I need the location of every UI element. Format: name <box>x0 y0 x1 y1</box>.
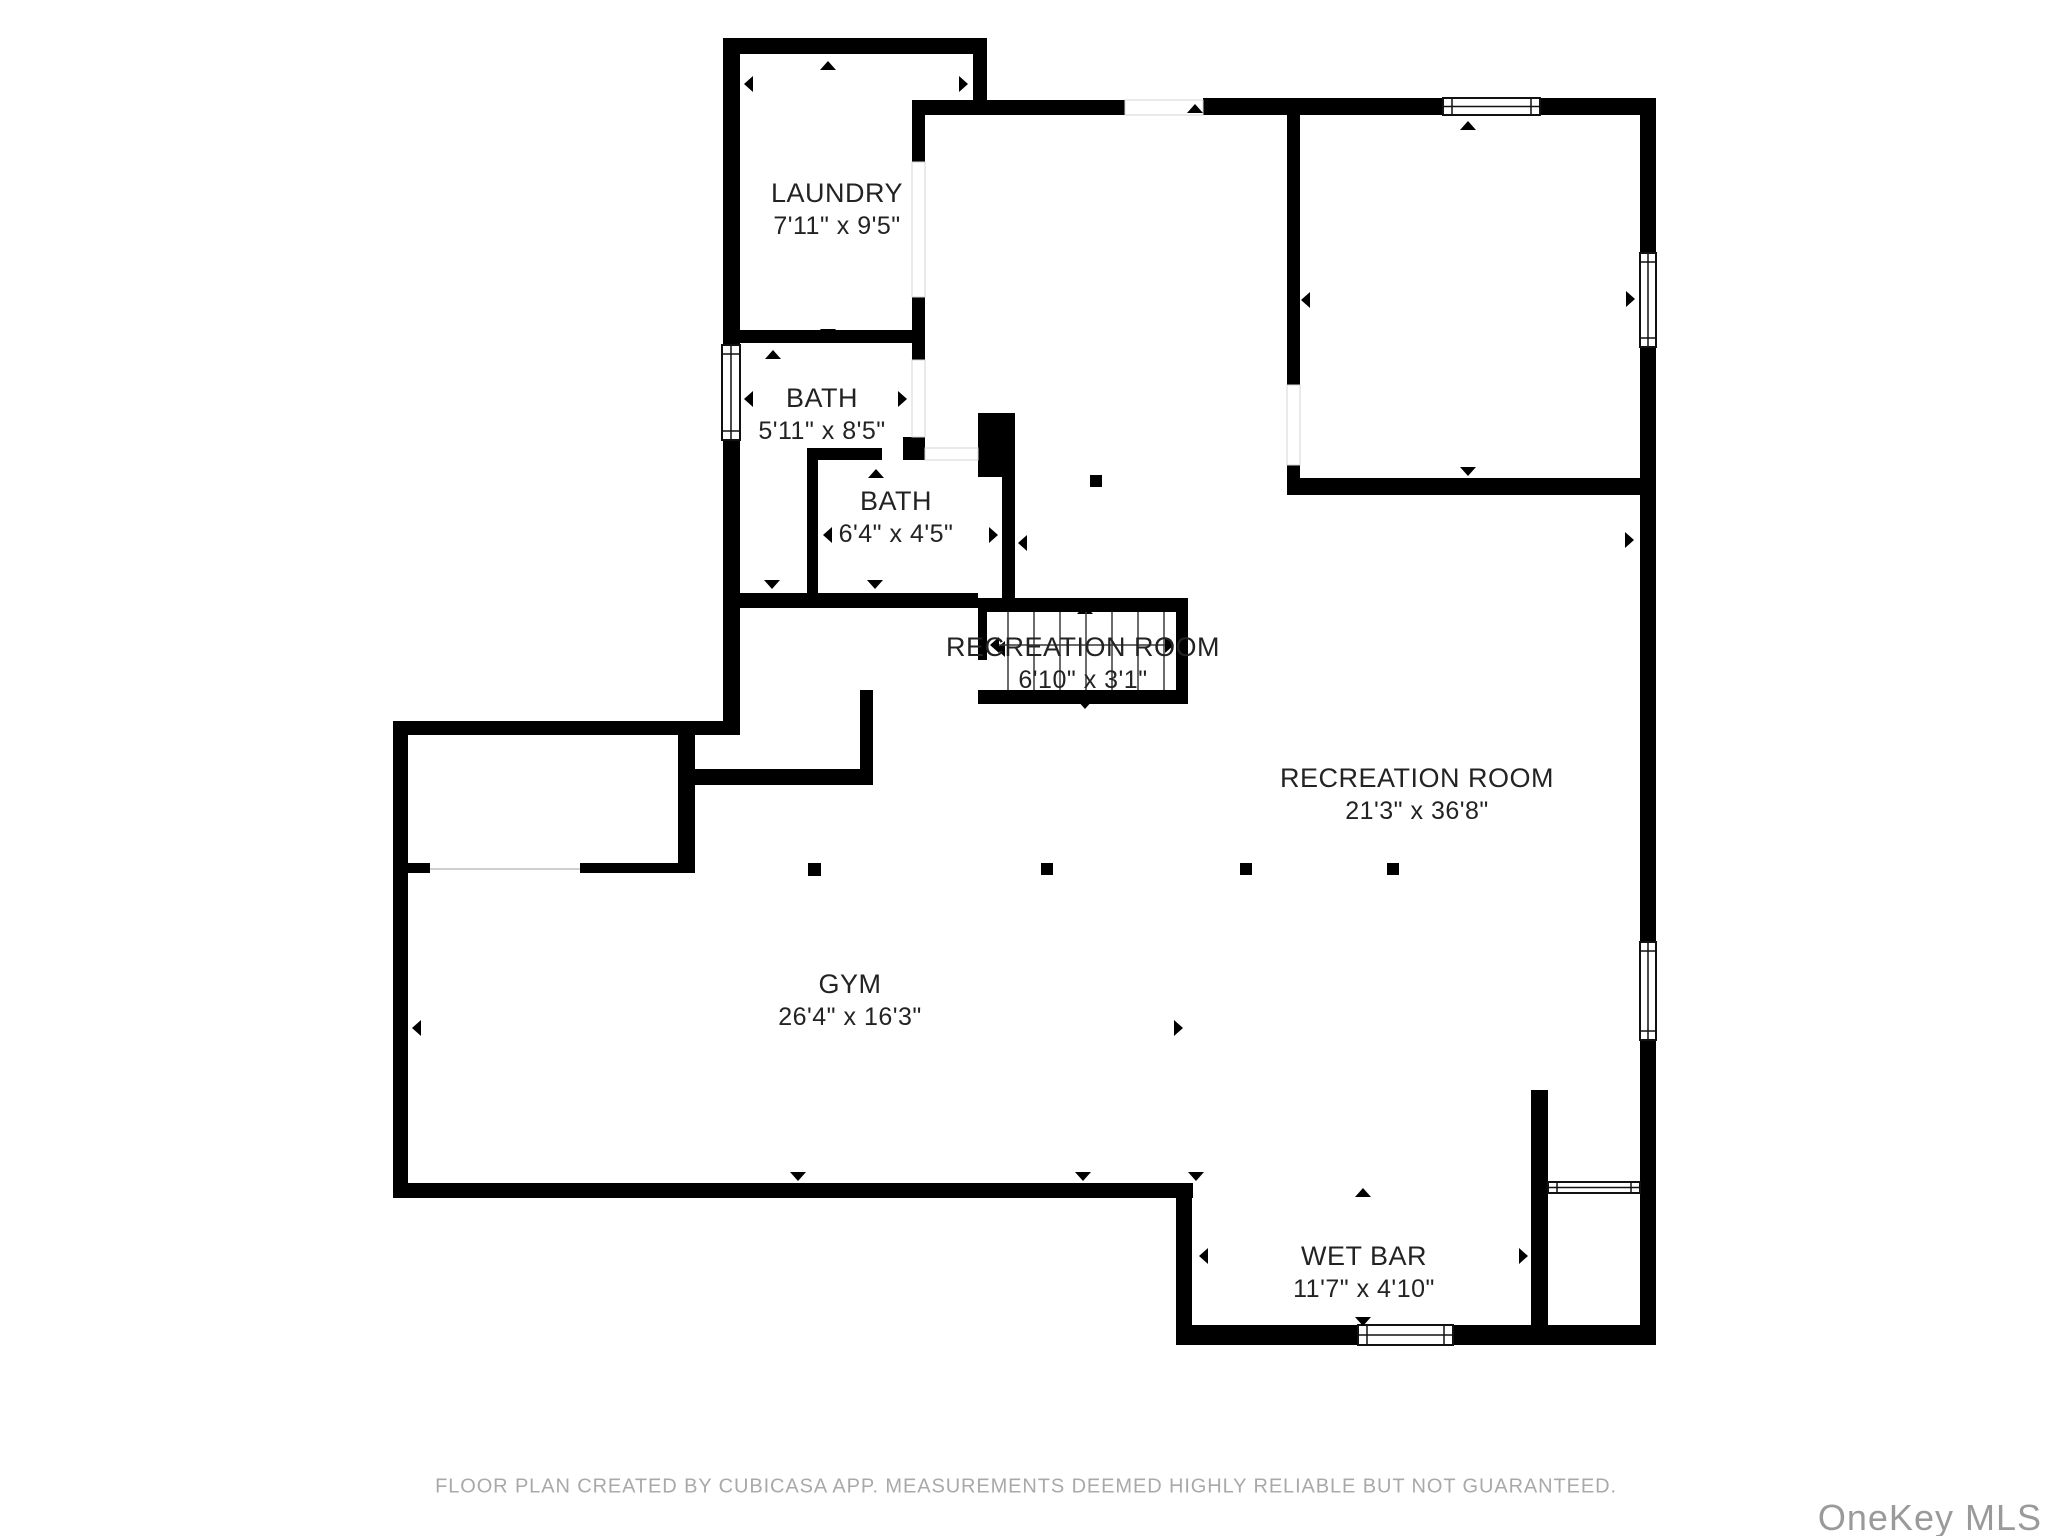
wall <box>1203 98 1443 115</box>
wall <box>393 1183 1193 1198</box>
wall <box>978 413 1015 477</box>
door-opening <box>912 162 925 297</box>
room-dimensions: 21'3" x 36'8" <box>1280 795 1554 828</box>
room-name: BATH <box>839 485 954 518</box>
wall <box>903 437 925 460</box>
wall <box>1640 1040 1656 1345</box>
room-dimensions: 7'11" x 9'5" <box>771 210 903 243</box>
column-post <box>808 863 821 876</box>
dimension-arrow-icon <box>790 1172 806 1181</box>
room-name: GYM <box>778 968 922 1001</box>
dimension-arrow-icon <box>1626 291 1635 307</box>
room-name: WET BAR <box>1293 1240 1435 1273</box>
dimension-arrow-icon <box>1301 292 1310 308</box>
room-name: LAUNDRY <box>771 177 903 210</box>
room-name: BATH <box>758 382 885 415</box>
room-label-bath-1: BATH 5'11" x 8'5" <box>758 382 885 448</box>
column-post <box>1041 863 1053 875</box>
wall <box>678 735 695 873</box>
room-label-gym: GYM 26'4" x 16'3" <box>778 968 922 1034</box>
dimension-arrow-icon <box>1174 1020 1183 1036</box>
dimension-arrow-icon <box>1077 700 1093 709</box>
wall <box>723 38 987 54</box>
wall <box>580 863 695 873</box>
dimension-arrow-icon <box>868 469 884 478</box>
dimension-arrow-icon <box>1355 1188 1371 1197</box>
dimension-arrow-icon <box>765 350 781 359</box>
column-post <box>1387 863 1399 875</box>
door-opening <box>925 448 978 460</box>
dimension-arrow-icon <box>1460 121 1476 130</box>
column-post <box>1090 475 1102 487</box>
room-dimensions: 26'4" x 16'3" <box>778 1001 922 1034</box>
wall <box>1176 1325 1358 1345</box>
room-label-bath-2: BATH 6'4" x 4'5" <box>839 485 954 551</box>
wall <box>408 863 430 873</box>
wall <box>1176 1183 1192 1345</box>
dimension-arrow-icon <box>1460 467 1476 476</box>
wall <box>912 115 925 162</box>
wall <box>1640 98 1656 253</box>
wall <box>1640 347 1656 942</box>
wall <box>807 460 818 593</box>
wall <box>695 769 873 785</box>
dimension-arrow-icon <box>744 76 753 92</box>
room-dimensions: 5'11" x 8'5" <box>758 415 885 448</box>
wall <box>393 721 740 735</box>
room-dimensions: 6'4" x 4'5" <box>839 518 954 551</box>
column-post <box>1240 863 1252 875</box>
room-label-stairs: RECREATION ROOM 6'10" x 3'1" <box>946 631 1220 697</box>
floor-plan-page: LAUNDRY 7'11" x 9'5" BATH 5'11" x 8'5" B… <box>0 0 2048 1536</box>
wall <box>1002 477 1015 598</box>
wall <box>1531 1090 1548 1325</box>
wall <box>1540 98 1656 115</box>
dimension-arrow-icon <box>1075 1172 1091 1181</box>
dimension-arrow-icon <box>959 76 968 92</box>
dimension-arrow-icon <box>823 527 832 543</box>
dimension-arrow-icon <box>1199 1248 1208 1264</box>
room-label-wet-bar: WET BAR 11'7" x 4'10" <box>1293 1240 1435 1306</box>
dimension-arrow-icon <box>412 1020 421 1036</box>
room-label-laundry: LAUNDRY 7'11" x 9'5" <box>771 177 903 243</box>
dimension-arrow-icon <box>898 391 907 407</box>
wall <box>860 690 873 785</box>
wall <box>807 448 882 460</box>
dimension-arrow-icon <box>744 391 753 407</box>
dimension-arrow-icon <box>1519 1248 1528 1264</box>
wall <box>1453 1325 1656 1345</box>
dimension-arrow-icon <box>820 61 836 70</box>
door-opening <box>1287 385 1300 465</box>
dimension-arrow-icon <box>867 580 883 589</box>
wall <box>973 38 987 105</box>
room-name: RECREATION ROOM <box>1280 762 1554 795</box>
wall <box>912 297 925 360</box>
wall <box>912 100 1125 115</box>
dimension-arrow-icon <box>1018 535 1027 551</box>
room-dimensions: 11'7" x 4'10" <box>1293 1273 1435 1306</box>
opening-line <box>430 868 580 870</box>
floor-plan-drawing <box>0 0 2048 1536</box>
room-dimensions: 6'10" x 3'1" <box>946 664 1220 697</box>
disclaimer-text: FLOOR PLAN CREATED BY CUBICASA APP. MEAS… <box>435 1476 1617 1499</box>
dimension-arrow-icon <box>989 527 998 543</box>
mls-watermark: OneKey MLS <box>1818 1497 2042 1536</box>
room-name: RECREATION ROOM <box>946 631 1220 664</box>
wall <box>723 593 978 608</box>
wall <box>1287 115 1300 385</box>
dimension-arrow-icon <box>1188 1172 1204 1181</box>
wall <box>1295 478 1640 495</box>
room-label-recreation: RECREATION ROOM 21'3" x 36'8" <box>1280 762 1554 828</box>
wall <box>723 330 912 343</box>
wall <box>393 735 408 1198</box>
dimension-arrow-icon <box>764 580 780 589</box>
dimension-arrow-icon <box>1625 532 1634 548</box>
door-opening <box>912 360 925 437</box>
